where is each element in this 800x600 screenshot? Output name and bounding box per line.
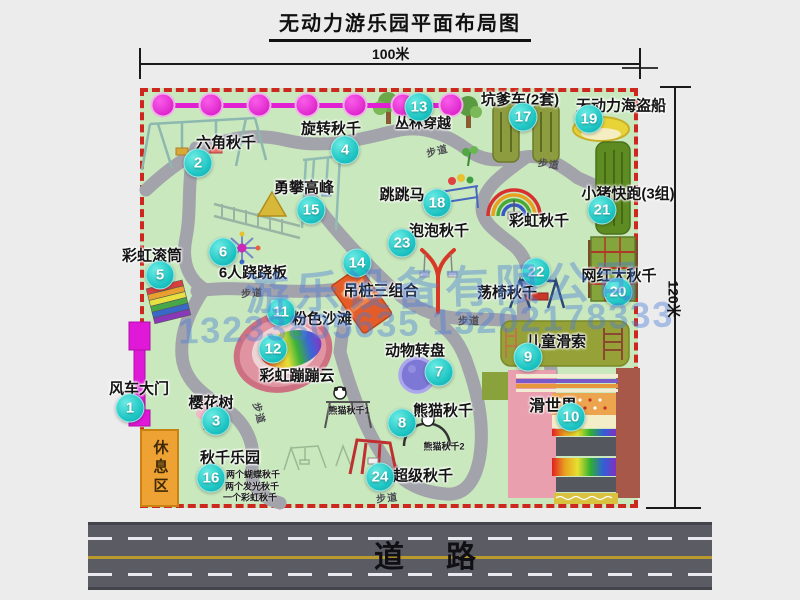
- width-dimension-label: 100米: [372, 44, 409, 64]
- attraction-number-22: 22: [522, 258, 551, 287]
- zipline-dot: [199, 93, 224, 118]
- attraction-number-3: 3: [202, 407, 231, 436]
- rest-area-label: 休息区: [150, 440, 171, 497]
- playground-map-image: 无动力游乐园平面布局图 100米 120米: [0, 0, 800, 600]
- attraction-label-rainbow-swing: 彩虹秋千: [509, 210, 569, 231]
- trail-label: 步道: [537, 154, 561, 172]
- top-dimension-serif: [622, 67, 658, 69]
- attraction-number-8: 8: [388, 409, 417, 438]
- attraction-label-1: 风车大门: [109, 378, 169, 399]
- trail-label: 步道: [241, 284, 264, 300]
- attraction-number-7: 7: [425, 358, 454, 387]
- attraction-label-14: 吊桩三组合: [343, 280, 418, 301]
- attraction-number-15: 15: [297, 196, 326, 225]
- attraction-label-24: 超级秋千: [393, 465, 453, 486]
- zipline-dot: [151, 93, 176, 118]
- right-dimension-tick-bottom: [646, 507, 701, 509]
- attraction-label-23: 泡泡秋千: [409, 220, 469, 241]
- zipline-dot: [343, 93, 368, 118]
- attraction-label-12: 彩虹蹦蹦云: [259, 365, 334, 386]
- attraction-number-19: 19: [575, 105, 604, 134]
- zipline-dot: [247, 93, 272, 118]
- attraction-number-16: 16: [197, 464, 226, 493]
- attraction-number-10: 10: [557, 403, 586, 432]
- attraction-number-24: 24: [366, 463, 395, 492]
- sub-label: 熊猫秋千1: [328, 404, 369, 417]
- attraction-number-6: 6: [209, 238, 238, 267]
- attraction-number-12: 12: [259, 335, 288, 364]
- attraction-label-11: 粉色沙滩: [292, 308, 352, 329]
- top-dimension-tick-right: [639, 48, 641, 79]
- height-dimension-label: 120米: [664, 280, 684, 317]
- road: 道 路: [88, 522, 712, 590]
- road-label: 道 路: [374, 532, 482, 576]
- top-dimension-tick-left: [139, 48, 141, 79]
- page-title: 无动力游乐园平面布局图: [269, 7, 531, 42]
- attraction-number-11: 11: [267, 298, 296, 327]
- sub-label: 熊猫秋千2: [423, 440, 464, 453]
- attraction-number-21: 21: [588, 196, 617, 225]
- attraction-label-15: 勇攀高峰: [274, 177, 334, 198]
- attraction-label-4: 旋转秋千: [301, 118, 361, 139]
- zipline-dot: [295, 93, 320, 118]
- attraction-label-8: 熊猫秋千: [413, 400, 473, 421]
- attraction-number-20: 20: [604, 278, 633, 307]
- attraction-number-23: 23: [388, 229, 417, 258]
- attraction-number-17: 17: [509, 103, 538, 132]
- attraction-number-2: 2: [184, 149, 213, 178]
- attraction-number-14: 14: [343, 249, 372, 278]
- sub-label: 一个彩虹秋千: [223, 491, 277, 504]
- right-dimension-tick-top: [660, 86, 691, 88]
- attraction-number-1: 1: [116, 394, 145, 423]
- trail-label: 步道: [458, 313, 480, 328]
- attraction-number-18: 18: [423, 189, 452, 218]
- attraction-label-18: 跳跳马: [379, 184, 424, 205]
- attraction-number-13: 13: [405, 93, 434, 122]
- attraction-number-5: 5: [146, 261, 175, 290]
- attraction-number-9: 9: [514, 343, 543, 372]
- attraction-number-4: 4: [331, 136, 360, 165]
